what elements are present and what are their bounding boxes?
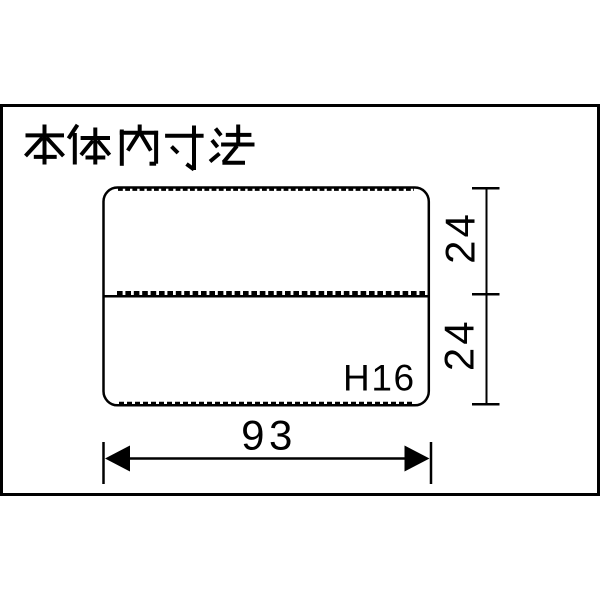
svg-text:H16: H16	[343, 358, 416, 399]
svg-text:24: 24	[436, 318, 483, 371]
svg-text:24: 24	[437, 211, 484, 264]
svg-text:93: 93	[241, 412, 297, 459]
